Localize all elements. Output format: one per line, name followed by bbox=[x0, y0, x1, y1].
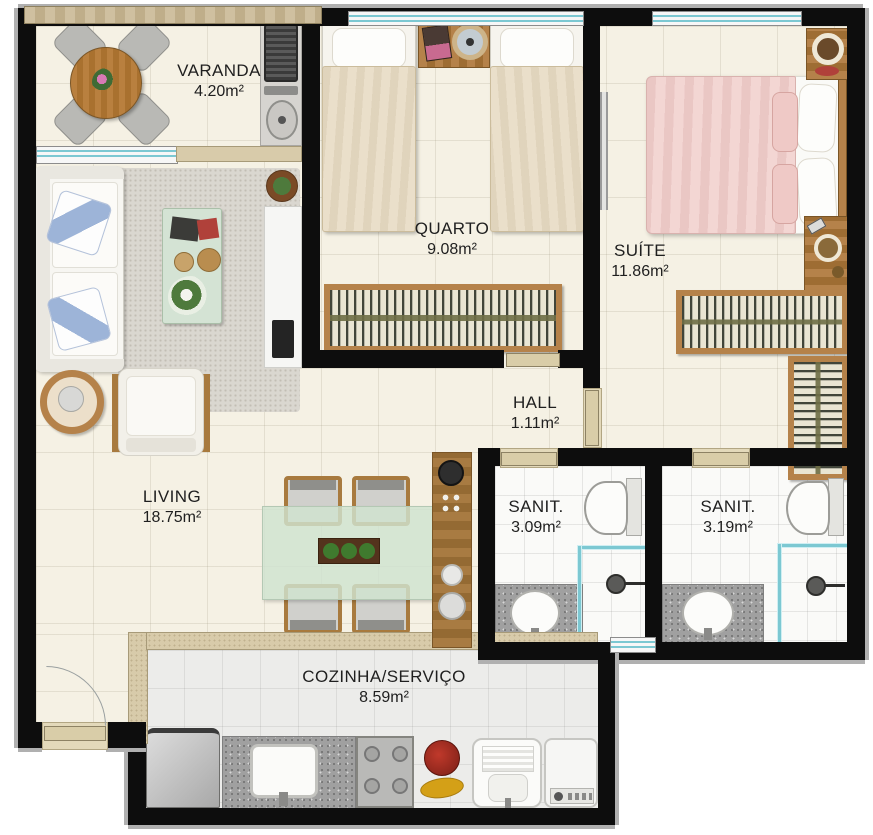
laundry-tub-ribs bbox=[482, 746, 534, 772]
toilet-bowl bbox=[584, 481, 628, 535]
sofa-backrest bbox=[34, 166, 50, 372]
suite-door bbox=[585, 390, 599, 446]
armchair-backrest bbox=[126, 438, 196, 452]
prep-sink-drain bbox=[278, 116, 286, 124]
wall-bathroom-row-c bbox=[748, 448, 865, 466]
room-area: 3.19m² bbox=[688, 518, 768, 538]
vanity-mirror bbox=[812, 33, 844, 65]
room-name: SANIT. bbox=[688, 496, 768, 518]
shower-glass bbox=[578, 546, 645, 549]
decor-bowl bbox=[174, 252, 194, 272]
flower-centerpiece bbox=[92, 68, 120, 96]
room-name: VARANDA bbox=[152, 60, 286, 82]
wall-right bbox=[847, 8, 865, 660]
fridge bbox=[146, 728, 220, 808]
basin-faucet bbox=[704, 628, 712, 640]
bathroom2-door bbox=[693, 452, 749, 466]
room-label-living: LIVING 18.75m² bbox=[112, 486, 232, 528]
wall-bathroom-row-b bbox=[556, 448, 692, 466]
room-area: 1.11m² bbox=[490, 414, 580, 434]
floor-plan: VARANDA 4.20m² QUARTO 9.08m² SUÍTE 11.86… bbox=[0, 0, 873, 835]
laundry-tub bbox=[472, 738, 542, 808]
shower-glass bbox=[578, 546, 581, 642]
wall-living-quarto bbox=[302, 8, 320, 368]
kitchen-faucet bbox=[279, 792, 288, 806]
planter-plant bbox=[323, 543, 339, 559]
stove-burner bbox=[392, 778, 408, 794]
nightstand-clock-center bbox=[466, 38, 474, 46]
sofa-armrest bbox=[34, 166, 124, 179]
room-label-suite: SUÍTE 11.86m² bbox=[585, 240, 695, 282]
wall-kitchen-right bbox=[598, 642, 615, 825]
room-name: HALL bbox=[490, 392, 580, 414]
wall-bottom-right bbox=[478, 642, 865, 660]
bed-pillow bbox=[796, 83, 838, 153]
room-name: SANIT. bbox=[496, 496, 576, 518]
room-area: 9.08m² bbox=[388, 240, 516, 260]
bed-pillow-pink bbox=[772, 164, 798, 224]
room-area: 4.20m² bbox=[152, 82, 286, 102]
bed-pillow-pink bbox=[772, 92, 798, 152]
window-service bbox=[610, 637, 656, 653]
toilet-tank bbox=[828, 478, 844, 536]
wall-mirror bbox=[600, 92, 608, 210]
wall-left bbox=[18, 8, 36, 748]
washer-knob bbox=[554, 792, 563, 801]
decor-plate bbox=[441, 564, 463, 586]
window-suite bbox=[652, 11, 802, 26]
dining-chair-back bbox=[290, 480, 336, 490]
sideboard-knobs bbox=[440, 492, 462, 514]
room-area: 11.86m² bbox=[585, 262, 695, 282]
room-label-cozinha: COZINHA/SERVIÇO 8.59m² bbox=[262, 666, 506, 708]
potted-plant bbox=[266, 170, 298, 202]
wall-clock bbox=[438, 460, 464, 486]
shower-arm bbox=[624, 582, 645, 585]
shower-arm bbox=[824, 584, 845, 587]
room-name: COZINHA/SERVIÇO bbox=[262, 666, 506, 688]
wall-bathroom1-left bbox=[478, 448, 495, 660]
wall-kitchen-bottom bbox=[128, 808, 615, 825]
toilet-tank bbox=[626, 478, 642, 536]
stove-burner bbox=[392, 746, 408, 762]
shower-head bbox=[806, 576, 826, 596]
bed-pillow bbox=[500, 28, 574, 68]
room-name: LIVING bbox=[112, 486, 232, 508]
room-area: 8.59m² bbox=[262, 688, 506, 708]
toilet-bowl bbox=[786, 481, 830, 535]
washer-buttons bbox=[568, 793, 592, 800]
wall-entry-b bbox=[106, 722, 146, 748]
dining-chair-back bbox=[358, 480, 404, 490]
wall-kitchen-left bbox=[128, 744, 146, 825]
coffee-table-books bbox=[197, 218, 220, 241]
tv bbox=[272, 320, 294, 358]
room-area: 18.75m² bbox=[112, 508, 232, 528]
planter-centerpiece bbox=[318, 538, 380, 564]
balcony-rail bbox=[24, 6, 322, 24]
nightstand-magazine bbox=[422, 24, 452, 61]
dining-chair-back bbox=[290, 620, 336, 630]
entry-door bbox=[44, 726, 106, 741]
desk-tray bbox=[814, 234, 842, 262]
wardrobe-suite-top bbox=[676, 290, 848, 354]
shower-glass bbox=[778, 544, 847, 547]
flower-bouquet bbox=[168, 276, 214, 318]
wardrobe-quarto bbox=[324, 284, 562, 352]
shower-head bbox=[606, 574, 626, 594]
room-name: SUÍTE bbox=[585, 240, 695, 262]
wall-entry-a bbox=[18, 722, 42, 748]
stove bbox=[356, 736, 414, 808]
room-name: QUARTO bbox=[388, 218, 516, 240]
room-label-hall: HALL 1.11m² bbox=[490, 392, 580, 434]
stove-burner bbox=[364, 746, 380, 762]
balcony-glass-door bbox=[36, 146, 178, 164]
quarto-door bbox=[506, 353, 560, 367]
room-label-quarto: QUARTO 9.08m² bbox=[388, 218, 516, 260]
side-table-plate bbox=[58, 386, 84, 412]
desk-snacks bbox=[832, 266, 844, 278]
room-label-sanit1: SANIT. 3.09m² bbox=[496, 496, 576, 538]
coffee-table-books bbox=[170, 216, 200, 241]
armchair-cushion bbox=[126, 376, 196, 436]
window-quarto bbox=[348, 11, 584, 26]
decor-plate bbox=[438, 592, 466, 620]
room-label-sanit2: SANIT. 3.19m² bbox=[688, 496, 768, 538]
kitchen-sink bbox=[250, 744, 318, 798]
shower-glass bbox=[778, 544, 781, 642]
bathroom1-door bbox=[501, 452, 557, 466]
washing-machine bbox=[544, 738, 598, 808]
planter-plant bbox=[341, 543, 357, 559]
balcony-sill bbox=[176, 146, 302, 162]
bed-pillow bbox=[332, 28, 406, 68]
wall-quarto-bottom bbox=[302, 350, 504, 368]
bed-headboard bbox=[838, 72, 847, 240]
room-label-varanda: VARANDA 4.20m² bbox=[152, 60, 286, 102]
wall-bathroom-divider bbox=[645, 448, 662, 660]
bed-blanket bbox=[490, 66, 584, 232]
bed-blanket bbox=[322, 66, 416, 232]
dining-chair-back bbox=[358, 620, 404, 630]
stove-burner bbox=[364, 778, 380, 794]
decor-bowl bbox=[197, 248, 221, 272]
washer-panel bbox=[550, 788, 594, 804]
wall-quarto-bottom-stub bbox=[558, 350, 586, 368]
room-area: 3.09m² bbox=[496, 518, 576, 538]
planter-plant bbox=[359, 543, 375, 559]
fruit-plate bbox=[424, 740, 460, 776]
wall-quarto-suite bbox=[583, 8, 600, 388]
vanity-flowers bbox=[815, 66, 839, 76]
